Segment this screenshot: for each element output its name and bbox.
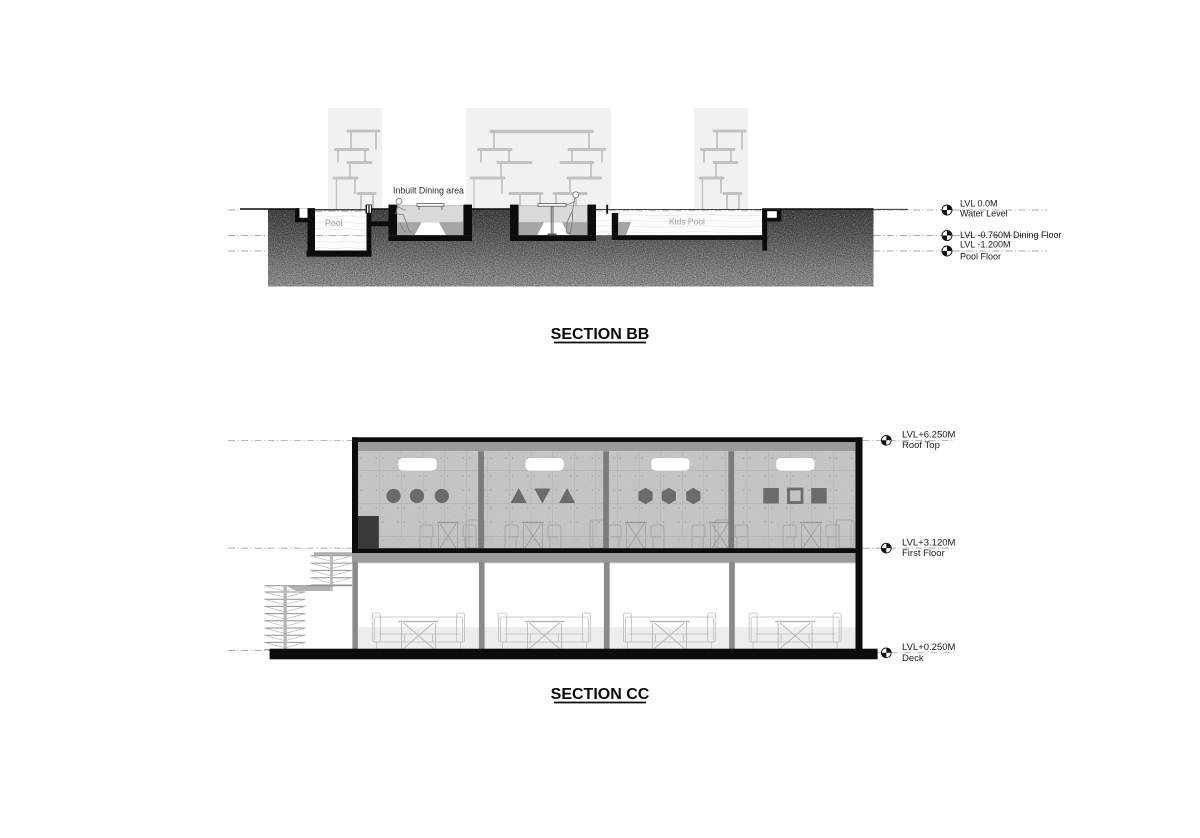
svg-text:First Floor: First Floor: [902, 548, 945, 559]
svg-text:Water Level: Water Level: [960, 209, 1008, 219]
svg-text:SECTION CC: SECTION CC: [551, 686, 650, 703]
svg-text:Pool Floor: Pool Floor: [960, 252, 1001, 262]
svg-text:Deck: Deck: [902, 653, 924, 664]
svg-text:Pool: Pool: [325, 218, 343, 228]
svg-text:LVL -1.200M: LVL -1.200M: [960, 240, 1011, 250]
svg-text:LVL -0.760M Dining Floor: LVL -0.760M Dining Floor: [960, 230, 1062, 240]
svg-text:Kids Pool: Kids Pool: [669, 217, 705, 227]
svg-text:Roof Top: Roof Top: [902, 440, 940, 451]
svg-text:SECTION BB: SECTION BB: [551, 326, 650, 343]
svg-text:LVL+3.120M: LVL+3.120M: [902, 537, 956, 548]
svg-text:LVL 0.0M: LVL 0.0M: [960, 199, 998, 209]
svg-text:Inbuilt Dining area: Inbuilt Dining area: [393, 186, 464, 196]
svg-text:LVL+6.250M: LVL+6.250M: [902, 430, 956, 441]
svg-text:LVL+0.250M: LVL+0.250M: [902, 642, 956, 653]
